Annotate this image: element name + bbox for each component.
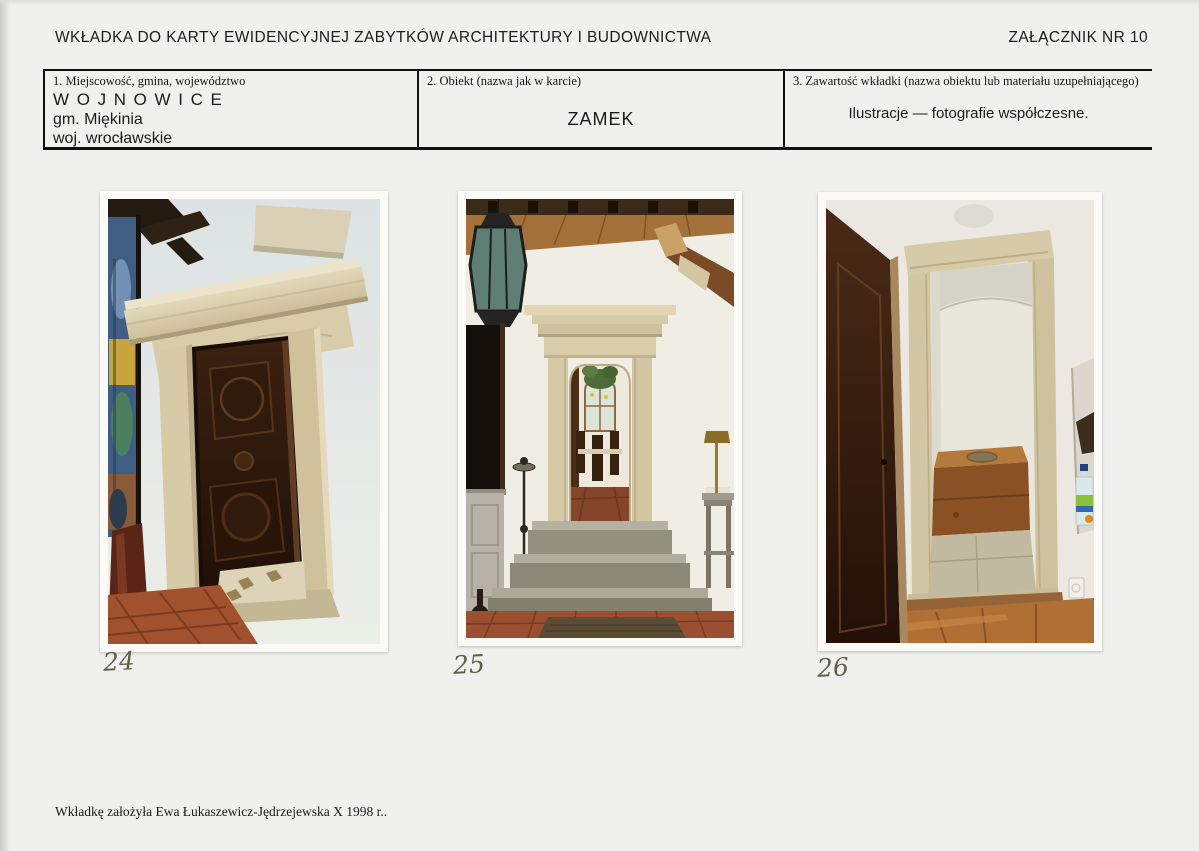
painting	[108, 215, 141, 539]
photo-26-image	[826, 200, 1094, 643]
contents-value: Ilustracje — fotografie współczesne.	[785, 105, 1152, 122]
locality-name: WOJNOWICE	[53, 90, 409, 110]
scan-edge-shadow-top	[0, 0, 1199, 6]
wall-lamp	[954, 204, 994, 228]
form-table: 1. Miejscowość, gmina, województwo WOJNO…	[43, 69, 1152, 150]
photo-25	[458, 191, 742, 646]
dining-room-view	[570, 359, 632, 537]
attachment-number-label: ZAŁĄCZNIK NR 10	[1008, 29, 1148, 47]
photo-24	[100, 191, 388, 652]
page-title: WKŁADKA DO KARTY EWIDENCYJNEJ ZABYTKÓW A…	[55, 29, 711, 47]
scanned-record-card-page: WKŁADKA DO KARTY EWIDENCYJNEJ ZABYTKÓW A…	[0, 0, 1199, 851]
framed-painting	[466, 323, 505, 491]
field-object-label: 2. Obiekt (nazwa jak w karcie)	[427, 74, 775, 89]
object-name: ZAMEK	[419, 109, 783, 130]
open-door	[826, 208, 908, 643]
field-locality: 1. Miejscowość, gmina, województwo WOJNO…	[45, 71, 419, 147]
stone-patch	[253, 205, 352, 259]
field-locality-label: 1. Miejscowość, gmina, województwo	[53, 74, 409, 89]
field-contents-label: 3. Zawartość wkładki (nazwa obiektu lub …	[793, 74, 1144, 89]
wooden-seat-box	[932, 446, 1030, 536]
photo-25-image	[466, 199, 734, 638]
doormat	[538, 617, 686, 638]
carved-wooden-door	[196, 340, 302, 599]
power-socket	[1069, 578, 1084, 598]
footer-note: Wkładkę założyła Ewa Łukaszewicz-Jędrzej…	[55, 804, 387, 820]
photo-26	[818, 192, 1102, 651]
handwritten-number-26: 26	[816, 652, 849, 683]
photo-24-image	[108, 199, 380, 644]
field-object: 2. Obiekt (nazwa jak w karcie) ZAMEK	[419, 71, 785, 147]
locality-commune: gm. Miękinia	[53, 110, 409, 129]
scan-edge-shadow	[0, 0, 10, 851]
field-contents: 3. Zawartość wkładki (nazwa obiektu lub …	[785, 71, 1152, 147]
page-header: WKŁADKA DO KARTY EWIDENCYJNEJ ZABYTKÓW A…	[55, 29, 1148, 47]
locality-voivodeship: woj. wrocławskie	[53, 129, 409, 148]
niche-floor-slabs	[928, 530, 1036, 596]
handwritten-number-25: 25	[452, 649, 485, 680]
handwritten-number-24: 24	[102, 646, 135, 677]
